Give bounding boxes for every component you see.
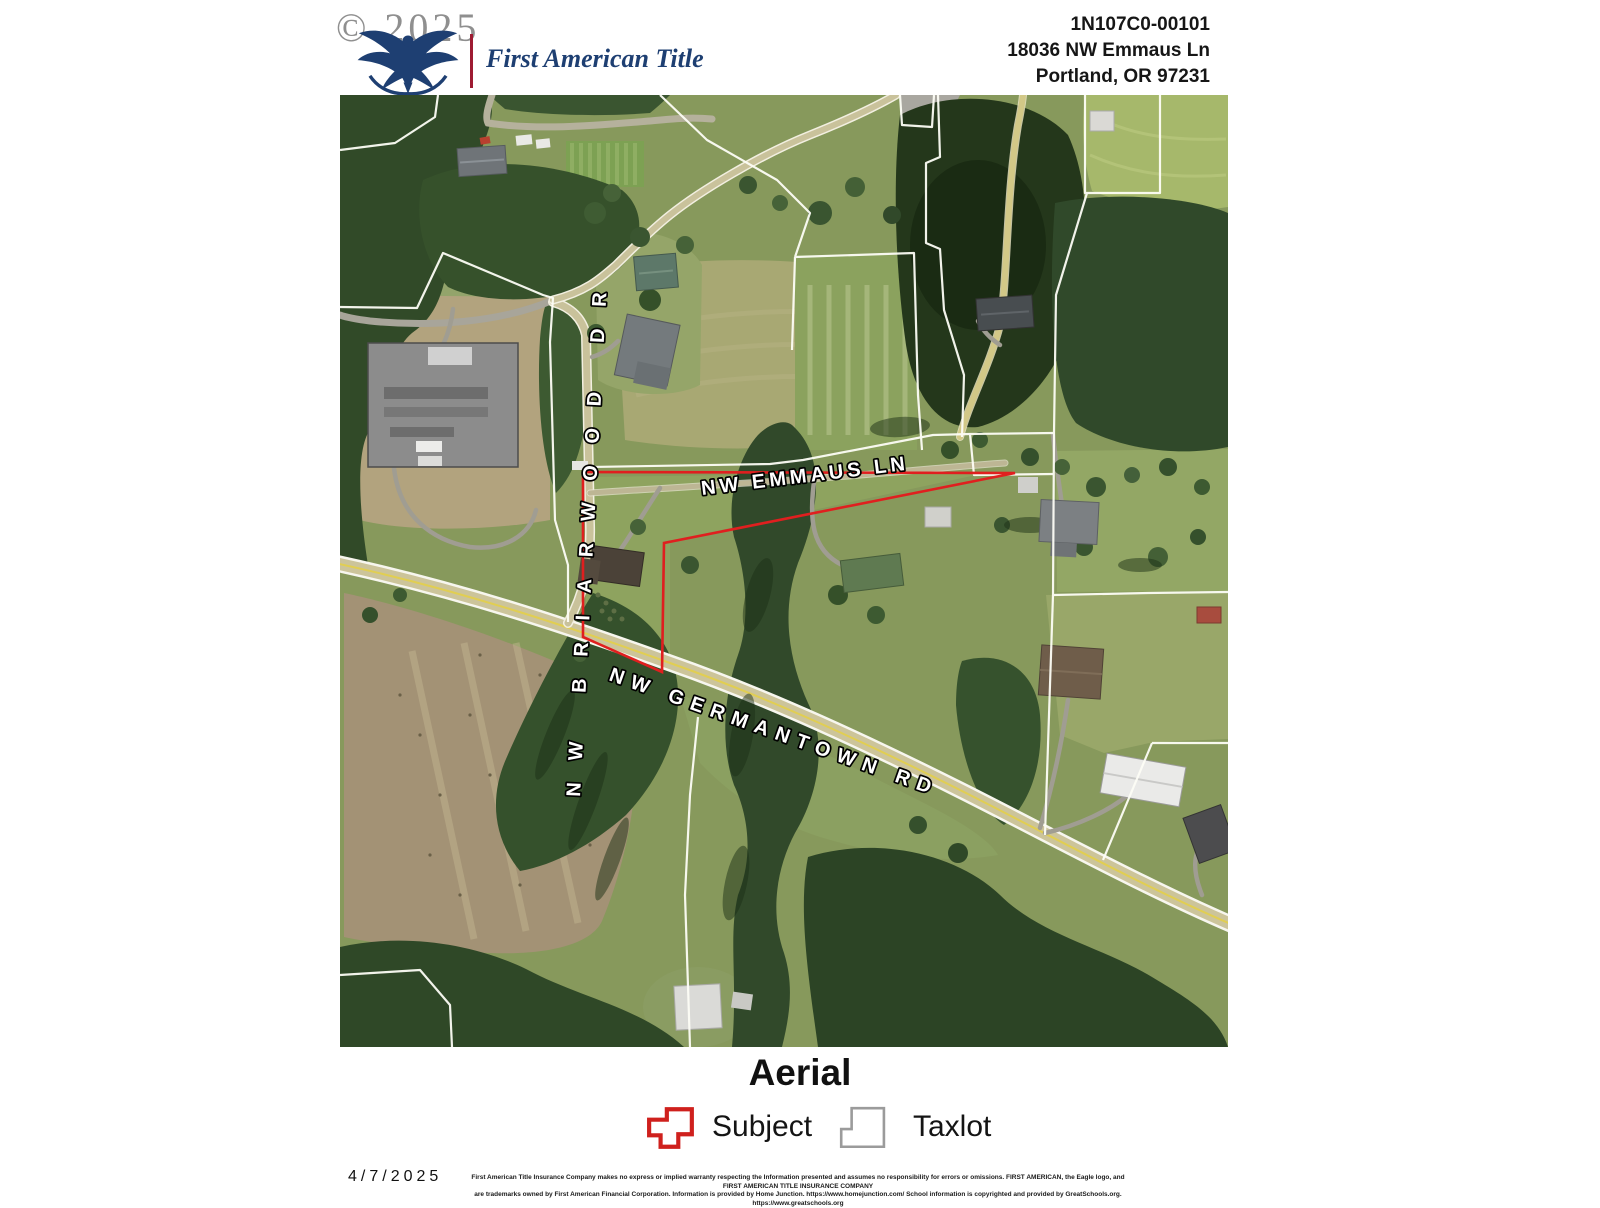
shed <box>1197 607 1221 623</box>
aerial-map: NW BRIARWOOD DR NW EMMAUS LN NW GERMANTO… <box>340 95 1228 1047</box>
house <box>634 253 679 291</box>
eagle-logo-icon <box>352 22 464 88</box>
house <box>457 145 507 176</box>
disclaimer-line1: First American Title Insurance Company m… <box>462 1174 1134 1191</box>
legend-taxlot-label: Taxlot <box>913 1110 991 1144</box>
legend-subject-label: Subject <box>712 1110 812 1144</box>
shed <box>925 507 951 527</box>
map-title: Aerial <box>600 1052 1000 1094</box>
legend-subject-icon <box>646 1106 696 1155</box>
brand-name: First American Title <box>486 44 704 74</box>
house <box>1038 645 1103 699</box>
parcel-id: 1N107C0-00101 <box>890 12 1210 38</box>
house <box>840 553 903 592</box>
disclaimer: First American Title Insurance Company m… <box>462 1174 1134 1208</box>
legend-taxlot-icon <box>836 1106 886 1155</box>
property-address: 18036 NW Emmaus Ln <box>890 38 1210 64</box>
property-city-state-zip: Portland, OR 97231 <box>890 64 1210 90</box>
shed <box>1018 477 1038 493</box>
shed <box>1090 111 1114 131</box>
shed <box>731 992 753 1011</box>
property-info: 1N107C0-00101 18036 NW Emmaus Ln Portlan… <box>890 12 1210 90</box>
substation-building <box>368 343 518 467</box>
house <box>674 984 722 1030</box>
logo-divider <box>470 34 473 88</box>
report-date: 4/7/2025 <box>348 1168 442 1186</box>
house <box>976 295 1034 331</box>
